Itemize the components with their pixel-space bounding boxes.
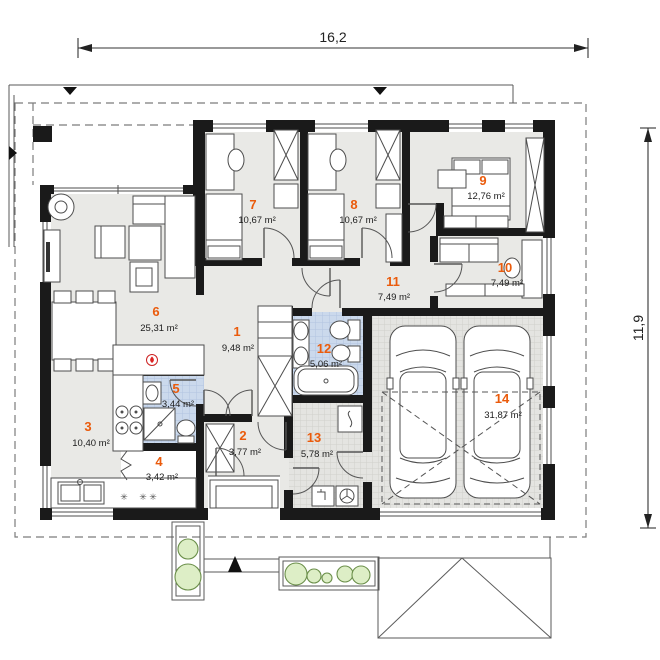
- terrace-column: [33, 126, 52, 142]
- coffee-table: [130, 262, 158, 292]
- room-1-number: 1: [233, 324, 240, 339]
- shrub: [285, 563, 307, 585]
- car: [387, 326, 459, 498]
- entrance-porch: [208, 476, 280, 520]
- window-living-glazing: [54, 185, 183, 194]
- toilet: [330, 321, 350, 339]
- furniture-hall: [258, 306, 292, 416]
- dimension-right: 11,9: [630, 128, 656, 528]
- room-14-number: 14: [495, 391, 510, 406]
- floor-plan-drawing: 16,2 11,9: [0, 0, 660, 660]
- room-6-number: 6: [152, 304, 159, 319]
- dimension-top: 16,2: [78, 29, 588, 58]
- entrance-arrow: [228, 556, 242, 572]
- armchair: [95, 226, 125, 258]
- shrub: [322, 573, 332, 583]
- armchair: [129, 226, 161, 260]
- washbasin: [294, 347, 308, 365]
- room-3-number: 3: [84, 419, 91, 434]
- room-4-number: 4: [155, 454, 163, 469]
- room-10-number: 10: [498, 260, 512, 275]
- room-1-area: 9,48 m²: [222, 343, 254, 354]
- shrub: [175, 564, 201, 590]
- room-8-area: 10,67 m²: [339, 215, 377, 226]
- room-6-area: 25,31 m²: [140, 323, 178, 334]
- dining-table: [52, 302, 116, 360]
- room-3-area: 10,40 m²: [72, 438, 110, 449]
- room-5-number: 5: [172, 381, 179, 396]
- bathtub: [294, 366, 358, 395]
- roof-slope-arrow: [373, 87, 387, 95]
- room-9-area: 12,76 m²: [467, 191, 505, 202]
- floor-drain-icon: ✳: [139, 492, 147, 502]
- room-2-area: 3,77 m²: [229, 447, 261, 458]
- window: [213, 120, 266, 132]
- shrub: [178, 539, 198, 559]
- room-4-area: 3,42 m²: [146, 472, 178, 483]
- toilet: [177, 420, 195, 436]
- shrub: [337, 566, 353, 582]
- window: [543, 238, 555, 294]
- room-13-number: 13: [307, 430, 321, 445]
- shrub: [307, 569, 321, 583]
- room-9-number: 9: [479, 173, 486, 188]
- floor-drain-icon: ✳: [149, 492, 157, 502]
- roof-slope-arrow: [9, 146, 17, 160]
- garage-door: [380, 508, 541, 520]
- washer: [312, 486, 334, 506]
- room-7-area: 10,67 m²: [238, 215, 276, 226]
- room-5-area: 3,44 m²: [162, 399, 194, 410]
- window: [315, 120, 368, 132]
- plant: [48, 194, 74, 220]
- desk: [522, 240, 542, 298]
- room-14-area: 31,87 m²: [484, 410, 522, 421]
- window: [40, 466, 51, 508]
- roof-slope-arrow: [63, 87, 77, 95]
- window: [543, 336, 555, 386]
- window: [505, 120, 533, 132]
- window: [543, 408, 555, 464]
- kitchen-counter: [113, 345, 204, 375]
- landscaping: [172, 522, 551, 638]
- room-8-number: 8: [350, 197, 357, 212]
- room-11-area: 7,49 m²: [378, 292, 410, 303]
- room-12-number: 12: [317, 341, 331, 356]
- room-2-number: 2: [239, 428, 246, 443]
- washbasin: [294, 322, 308, 340]
- room-7-number: 7: [249, 197, 256, 212]
- detached-roof-outline: [378, 537, 551, 638]
- room-10-area: 7,49 m²: [491, 278, 523, 289]
- room-13-area: 5,78 m²: [301, 449, 333, 460]
- window: [52, 508, 113, 520]
- window: [449, 120, 482, 132]
- room-12-area: 5,06 m²: [310, 359, 342, 370]
- floor-plan-page: 16,2 11,9: [0, 0, 660, 660]
- room-11-number: 11: [386, 274, 400, 289]
- dimension-width-label: 16,2: [319, 29, 346, 45]
- dimension-height-label: 11,9: [630, 315, 646, 341]
- floor-drain-icon: ✳: [120, 492, 128, 502]
- shrub: [352, 566, 370, 584]
